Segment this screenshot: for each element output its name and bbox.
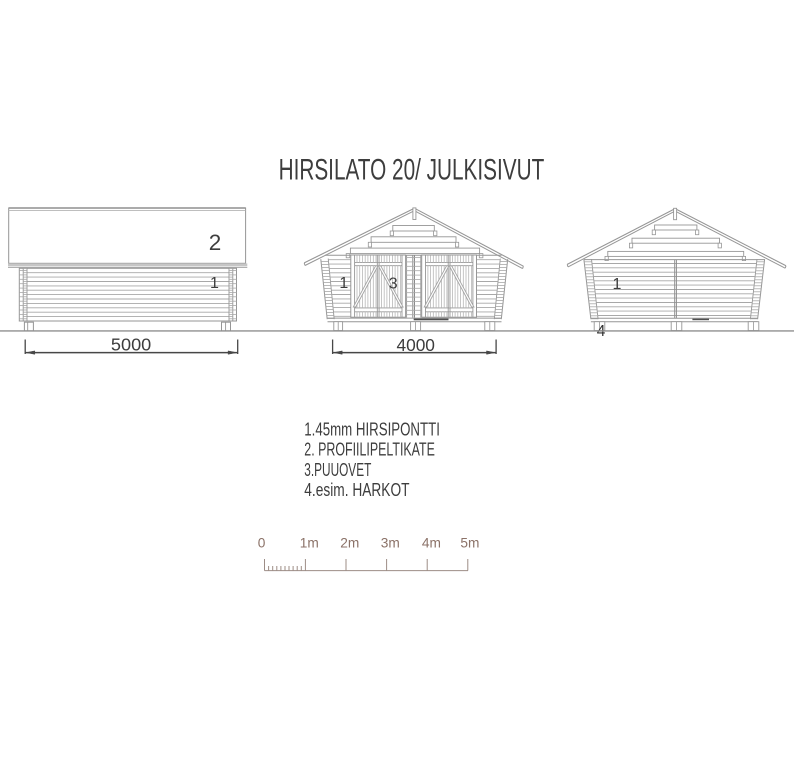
svg-text:3.PUUOVET: 3.PUUOVET — [304, 460, 371, 480]
svg-text:5m: 5m — [460, 535, 479, 550]
svg-text:3m: 3m — [381, 535, 400, 550]
svg-text:1m: 1m — [300, 535, 319, 550]
svg-text:0: 0 — [258, 535, 266, 550]
svg-text:2. PROFIILIPELTIKATE: 2. PROFIILIPELTIKATE — [304, 440, 435, 460]
svg-text:2: 2 — [209, 230, 222, 255]
svg-text:4m: 4m — [422, 535, 441, 550]
svg-text:4000: 4000 — [396, 335, 435, 355]
svg-text:4.esim. HARKOT: 4.esim. HARKOT — [304, 480, 409, 500]
svg-text:1: 1 — [612, 276, 621, 293]
svg-text:5000: 5000 — [111, 334, 151, 354]
svg-text:HIRSILATO 20/ JULKISIVUT: HIRSILATO 20/ JULKISIVUT — [279, 154, 545, 187]
svg-text:2m: 2m — [340, 535, 359, 550]
svg-text:1: 1 — [339, 275, 348, 292]
svg-text:1: 1 — [210, 275, 219, 292]
svg-text:3: 3 — [389, 275, 398, 292]
svg-text:1.45mm HIRSIPONTTI: 1.45mm HIRSIPONTTI — [304, 419, 440, 439]
